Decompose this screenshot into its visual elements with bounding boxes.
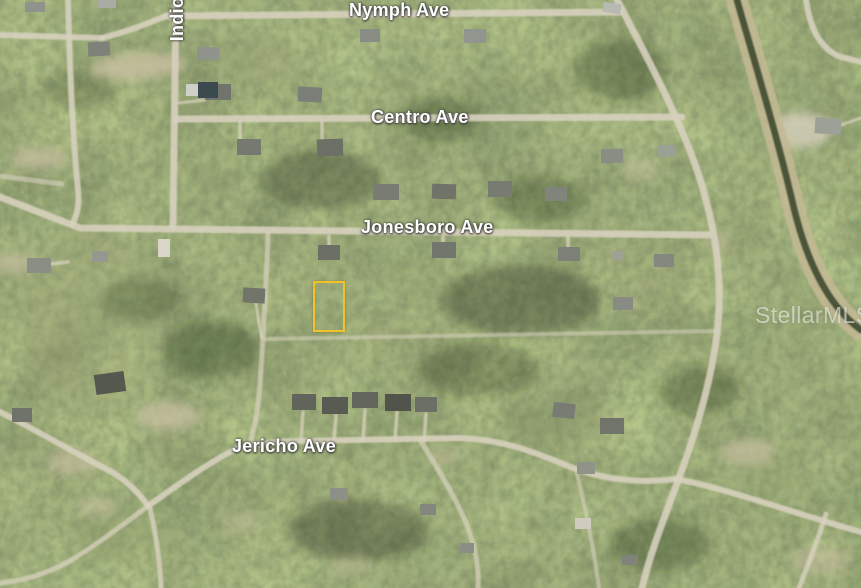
- street-label-centro-ave: Centro Ave: [371, 107, 469, 127]
- aerial-map[interactable]: Nymph Ave Centro Ave Jonesboro Ave Jeric…: [0, 0, 861, 588]
- swimming-pool: [198, 82, 218, 98]
- aerial-imagery: [0, 0, 861, 588]
- street-label-jonesboro-ave: Jonesboro Ave: [361, 217, 494, 237]
- street-label-jericho-ave: Jericho Ave: [232, 436, 336, 456]
- stellar-mls-watermark: StellarMLS: [755, 302, 861, 329]
- street-label-indio: Indio: [167, 0, 187, 42]
- parcel-highlight[interactable]: [313, 281, 345, 332]
- street-label-nymph-ave: Nymph Ave: [349, 0, 449, 20]
